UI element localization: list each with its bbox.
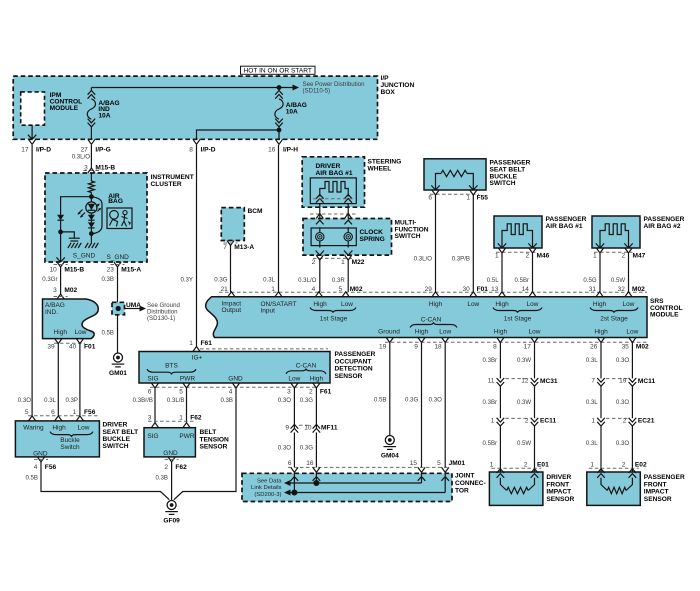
svg-text:GF09: GF09 <box>163 518 180 525</box>
svg-text:1st Stage: 1st Stage <box>320 315 348 322</box>
svg-text:0.3P/B: 0.3P/B <box>452 255 470 262</box>
svg-text:2: 2 <box>621 253 625 260</box>
svg-text:F56: F56 <box>84 409 96 416</box>
svg-text:0.3Br: 0.3Br <box>483 357 498 364</box>
svg-text:0.3W: 0.3W <box>517 357 531 364</box>
svg-text:40: 40 <box>69 344 77 351</box>
svg-text:32: 32 <box>618 286 626 293</box>
svg-text:IMPACT: IMPACT <box>546 489 571 496</box>
svg-text:MF11: MF11 <box>321 424 338 431</box>
svg-text:M02: M02 <box>350 286 363 293</box>
svg-text:IG+: IG+ <box>192 354 203 361</box>
svg-text:1: 1 <box>490 462 494 469</box>
svg-text:1: 1 <box>73 409 77 416</box>
svg-text:SENSOR: SENSOR <box>546 496 574 503</box>
svg-text:SWITCH: SWITCH <box>490 180 516 187</box>
svg-text:0.3Br: 0.3Br <box>483 399 498 406</box>
svg-text:19: 19 <box>379 344 387 351</box>
svg-text:10A: 10A <box>98 113 110 120</box>
svg-text:9: 9 <box>285 424 289 431</box>
svg-text:FRONT: FRONT <box>644 481 667 488</box>
svg-text:I/P-D: I/P-D <box>201 147 216 154</box>
svg-text:Low: Low <box>529 329 541 336</box>
svg-text:2: 2 <box>623 417 627 424</box>
svg-text:SIG: SIG <box>147 433 158 440</box>
svg-text:0.3O: 0.3O <box>18 397 31 404</box>
svg-text:0.3L: 0.3L <box>586 357 598 364</box>
svg-text:M47: M47 <box>633 253 646 260</box>
svg-text:GND: GND <box>163 450 178 457</box>
svg-text:High: High <box>310 376 324 383</box>
svg-text:2: 2 <box>622 462 626 469</box>
svg-text:PWR: PWR <box>180 376 195 383</box>
svg-text:39: 39 <box>47 344 55 351</box>
svg-text:31: 31 <box>589 286 597 293</box>
svg-text:6: 6 <box>148 388 152 395</box>
svg-text:2: 2 <box>164 464 168 471</box>
svg-text:1: 1 <box>593 253 597 260</box>
svg-text:AIR BAG #1: AIR BAG #1 <box>316 170 353 177</box>
svg-text:MODULE: MODULE <box>50 105 79 112</box>
svg-text:S_GND: S_GND <box>106 254 129 261</box>
svg-text:0.3L/O: 0.3L/O <box>414 255 433 262</box>
svg-text:6: 6 <box>51 409 55 416</box>
svg-text:10: 10 <box>304 424 312 431</box>
svg-text:I/P-D: I/P-D <box>36 147 51 154</box>
svg-text:I/P-H: I/P-H <box>283 147 298 154</box>
svg-text:BELT: BELT <box>200 429 217 436</box>
svg-text:CLUSTER: CLUSTER <box>151 181 182 188</box>
svg-text:0.5W: 0.5W <box>611 277 625 284</box>
svg-text:(SD110-5): (SD110-5) <box>303 88 331 95</box>
svg-text:M02: M02 <box>64 287 77 294</box>
svg-text:Low: Low <box>623 301 635 308</box>
svg-text:0.3Gr: 0.3Gr <box>42 276 57 283</box>
svg-text:IND.: IND. <box>45 309 58 316</box>
svg-text:High: High <box>593 301 607 308</box>
svg-text:0.5B: 0.5B <box>25 475 38 482</box>
svg-text:30: 30 <box>462 286 470 293</box>
svg-text:Low: Low <box>626 329 638 336</box>
svg-text:0.3L: 0.3L <box>586 399 598 406</box>
svg-text:5: 5 <box>179 388 183 395</box>
svg-text:FRONT: FRONT <box>546 481 569 488</box>
svg-text:High: High <box>415 329 429 336</box>
svg-text:Ground: Ground <box>378 329 400 336</box>
svg-text:I/P: I/P <box>381 75 390 82</box>
svg-text:6: 6 <box>288 460 292 467</box>
svg-text:High: High <box>494 329 508 336</box>
svg-text:M22: M22 <box>352 259 365 266</box>
svg-text:SENSOR: SENSOR <box>200 444 228 451</box>
svg-text:JOINT: JOINT <box>455 473 474 480</box>
svg-text:0.3B: 0.3B <box>101 276 114 283</box>
svg-text:M13-A: M13-A <box>234 244 254 251</box>
svg-text:PWR: PWR <box>179 433 194 440</box>
svg-text:2: 2 <box>309 388 313 395</box>
svg-text:GM01: GM01 <box>109 370 127 377</box>
svg-text:TENSION: TENSION <box>200 436 230 443</box>
svg-text:BTS: BTS <box>165 363 178 370</box>
svg-text:F61: F61 <box>320 388 332 395</box>
svg-text:(SD200-3): (SD200-3) <box>254 492 281 498</box>
svg-text:See Data: See Data <box>257 479 282 485</box>
svg-text:MC31: MC31 <box>540 378 558 385</box>
svg-text:BUCKLE: BUCKLE <box>103 436 131 443</box>
svg-text:0.3O: 0.3O <box>278 445 291 452</box>
svg-text:0.3B: 0.3B <box>220 397 233 404</box>
svg-text:SWITCH: SWITCH <box>395 233 421 240</box>
svg-text:10: 10 <box>50 267 58 274</box>
svg-text:1: 1 <box>271 286 275 293</box>
svg-text:Low: Low <box>288 376 300 383</box>
svg-text:11: 11 <box>488 378 495 385</box>
svg-text:3: 3 <box>84 165 88 172</box>
svg-text:3: 3 <box>53 287 57 294</box>
svg-text:Low: Low <box>467 301 479 308</box>
svg-text:23: 23 <box>107 267 115 274</box>
svg-text:PASSENGER: PASSENGER <box>335 351 376 358</box>
svg-text:0.3L/O: 0.3L/O <box>298 277 317 284</box>
svg-text:1: 1 <box>179 414 183 421</box>
svg-text:14: 14 <box>522 286 530 293</box>
svg-text:PASSENGER: PASSENGER <box>644 474 685 481</box>
svg-text:Output: Output <box>222 307 242 314</box>
svg-text:(SD130-1): (SD130-1) <box>147 315 175 322</box>
svg-text:2: 2 <box>525 253 529 260</box>
svg-text:Link Details: Link Details <box>251 485 282 491</box>
svg-text:BOX: BOX <box>381 89 396 96</box>
svg-text:4: 4 <box>34 464 38 471</box>
svg-text:C-CAN: C-CAN <box>296 363 317 370</box>
svg-text:0.3L/O: 0.3L/O <box>72 154 91 161</box>
svg-text:27: 27 <box>81 147 89 154</box>
svg-text:F62: F62 <box>190 414 202 421</box>
svg-text:0.3O: 0.3O <box>616 440 629 447</box>
svg-text:9: 9 <box>414 344 418 351</box>
svg-text:0.3L/B: 0.3L/B <box>167 397 185 404</box>
svg-text:EC11: EC11 <box>540 418 556 425</box>
svg-text:SEAT BELT: SEAT BELT <box>103 429 139 436</box>
svg-text:1: 1 <box>590 462 594 469</box>
svg-text:High: High <box>594 329 608 336</box>
svg-text:High: High <box>54 329 68 336</box>
svg-text:TOR: TOR <box>455 488 469 495</box>
svg-text:16: 16 <box>306 460 314 467</box>
svg-text:I/P-G: I/P-G <box>95 147 110 154</box>
svg-text:CONNEC-: CONNEC- <box>455 480 486 487</box>
svg-text:2: 2 <box>312 259 316 266</box>
svg-text:4: 4 <box>229 388 233 395</box>
svg-text:F56: F56 <box>45 464 57 471</box>
svg-text:7: 7 <box>591 378 595 385</box>
svg-text:0.3L: 0.3L <box>263 276 275 283</box>
svg-text:Low: Low <box>341 301 353 308</box>
svg-text:1: 1 <box>189 340 193 347</box>
svg-text:M15-B: M15-B <box>64 267 84 274</box>
svg-text:0.5W: 0.5W <box>517 440 531 447</box>
svg-text:DETECTION: DETECTION <box>335 366 373 373</box>
svg-text:0.3G: 0.3G <box>300 445 313 452</box>
svg-text:0.3G: 0.3G <box>300 397 313 404</box>
svg-text:0.3P: 0.3P <box>65 397 78 404</box>
svg-text:0.3G: 0.3G <box>214 276 227 283</box>
svg-text:SENSOR: SENSOR <box>335 373 363 380</box>
svg-text:1: 1 <box>341 259 345 266</box>
svg-text:F01: F01 <box>84 344 96 351</box>
svg-text:Input: Input <box>261 307 276 314</box>
svg-text:HOT IN ON OR START: HOT IN ON OR START <box>243 68 312 75</box>
svg-text:0.5Br: 0.5Br <box>483 440 498 447</box>
svg-text:JM01: JM01 <box>449 460 466 467</box>
svg-text:10A: 10A <box>286 108 298 115</box>
svg-text:High: High <box>313 301 327 308</box>
svg-text:High: High <box>52 424 66 431</box>
svg-text:0.3O: 0.3O <box>616 357 629 364</box>
svg-text:1: 1 <box>495 253 499 260</box>
svg-text:3: 3 <box>148 414 152 421</box>
svg-text:0.5B: 0.5B <box>101 330 114 337</box>
svg-text:0.3B: 0.3B <box>155 475 168 482</box>
svg-text:1: 1 <box>591 417 595 424</box>
svg-text:29: 29 <box>425 286 433 293</box>
svg-text:16: 16 <box>268 147 276 154</box>
svg-text:MODULE: MODULE <box>650 312 679 319</box>
svg-text:5: 5 <box>437 460 441 467</box>
svg-text:M46: M46 <box>537 253 550 260</box>
svg-text:0.3Y: 0.3Y <box>180 276 193 283</box>
svg-text:SIG: SIG <box>147 376 158 383</box>
svg-text:1st Stage: 1st Stage <box>504 315 532 322</box>
svg-text:21: 21 <box>221 286 229 293</box>
svg-text:0.3L: 0.3L <box>44 397 56 404</box>
svg-text:12: 12 <box>521 378 529 385</box>
svg-text:High: High <box>429 301 443 308</box>
svg-text:GND: GND <box>33 450 48 457</box>
svg-text:5: 5 <box>25 409 29 416</box>
svg-text:6: 6 <box>428 195 432 202</box>
svg-text:17: 17 <box>21 147 29 154</box>
svg-text:1: 1 <box>466 195 470 202</box>
svg-text:F62: F62 <box>175 464 187 471</box>
svg-text:S_GND: S_GND <box>73 253 96 260</box>
svg-text:0.3O: 0.3O <box>278 397 291 404</box>
svg-text:F01: F01 <box>477 286 489 293</box>
svg-text:M02: M02 <box>632 286 645 293</box>
svg-text:C-CAN: C-CAN <box>421 317 442 324</box>
svg-text:2: 2 <box>524 462 528 469</box>
svg-text:BCM: BCM <box>248 208 264 215</box>
svg-text:Waring: Waring <box>23 424 44 431</box>
svg-text:EC21: EC21 <box>638 418 655 425</box>
svg-text:2: 2 <box>525 417 529 424</box>
svg-text:E01: E01 <box>537 462 549 469</box>
svg-text:15: 15 <box>410 460 418 467</box>
svg-text:0.3R: 0.3R <box>332 277 345 284</box>
svg-text:AIR BAG #2: AIR BAG #2 <box>644 223 681 230</box>
svg-text:0.3G: 0.3G <box>405 397 418 404</box>
svg-text:DRIVER: DRIVER <box>103 422 128 429</box>
svg-text:26: 26 <box>590 344 598 351</box>
svg-text:OCCUPANT: OCCUPANT <box>335 358 372 365</box>
svg-text:High: High <box>495 301 509 308</box>
svg-text:13: 13 <box>491 286 499 293</box>
svg-text:F55: F55 <box>477 195 489 202</box>
svg-text:0.5G: 0.5G <box>583 277 596 284</box>
svg-text:WHEEL: WHEEL <box>368 165 392 172</box>
svg-text:F61: F61 <box>201 340 213 347</box>
svg-text:0.3O: 0.3O <box>429 397 442 404</box>
svg-text:SPRING: SPRING <box>360 236 385 243</box>
svg-text:0.3L: 0.3L <box>586 440 598 447</box>
svg-text:M15-B: M15-B <box>95 165 115 172</box>
svg-text:4: 4 <box>312 286 316 293</box>
svg-text:Low: Low <box>75 329 87 336</box>
svg-text:0.5Br: 0.5Br <box>515 277 530 284</box>
svg-text:BAG: BAG <box>108 198 123 205</box>
svg-text:Low: Low <box>439 329 451 336</box>
svg-text:M02: M02 <box>636 344 649 351</box>
svg-text:0.3W: 0.3W <box>517 399 531 406</box>
svg-text:SWITCH: SWITCH <box>103 443 129 450</box>
svg-text:M15-A: M15-A <box>121 267 141 274</box>
svg-text:3: 3 <box>287 388 291 395</box>
svg-text:Low: Low <box>78 424 90 431</box>
svg-text:Switch: Switch <box>60 444 80 451</box>
svg-text:E02: E02 <box>635 462 647 469</box>
svg-text:2st Stage: 2st Stage <box>600 315 628 322</box>
svg-text:1: 1 <box>491 417 495 424</box>
svg-text:7: 7 <box>223 244 227 251</box>
svg-text:IMPACT: IMPACT <box>644 489 669 496</box>
svg-text:GM04: GM04 <box>381 453 399 460</box>
svg-text:18: 18 <box>434 344 442 351</box>
svg-text:GND: GND <box>228 376 243 383</box>
svg-text:17: 17 <box>524 344 532 351</box>
svg-text:0.3O: 0.3O <box>616 399 629 406</box>
svg-text:MC11: MC11 <box>638 378 656 385</box>
svg-text:0.5L: 0.5L <box>487 277 499 284</box>
svg-text:0.5B: 0.5B <box>374 397 387 404</box>
svg-text:AIR BAG #1: AIR BAG #1 <box>546 223 583 230</box>
svg-text:A/BAG: A/BAG <box>45 302 65 309</box>
svg-text:19: 19 <box>619 378 627 385</box>
svg-text:0.3Br/B: 0.3Br/B <box>133 397 153 404</box>
svg-text:SENSOR: SENSOR <box>644 496 672 503</box>
svg-text:35: 35 <box>622 344 630 351</box>
svg-text:JUNCTION: JUNCTION <box>381 82 415 89</box>
svg-text:5: 5 <box>338 286 342 293</box>
svg-text:DRIVER: DRIVER <box>546 474 571 481</box>
svg-text:8: 8 <box>493 344 497 351</box>
svg-text:8: 8 <box>189 147 193 154</box>
svg-text:Low: Low <box>527 301 539 308</box>
